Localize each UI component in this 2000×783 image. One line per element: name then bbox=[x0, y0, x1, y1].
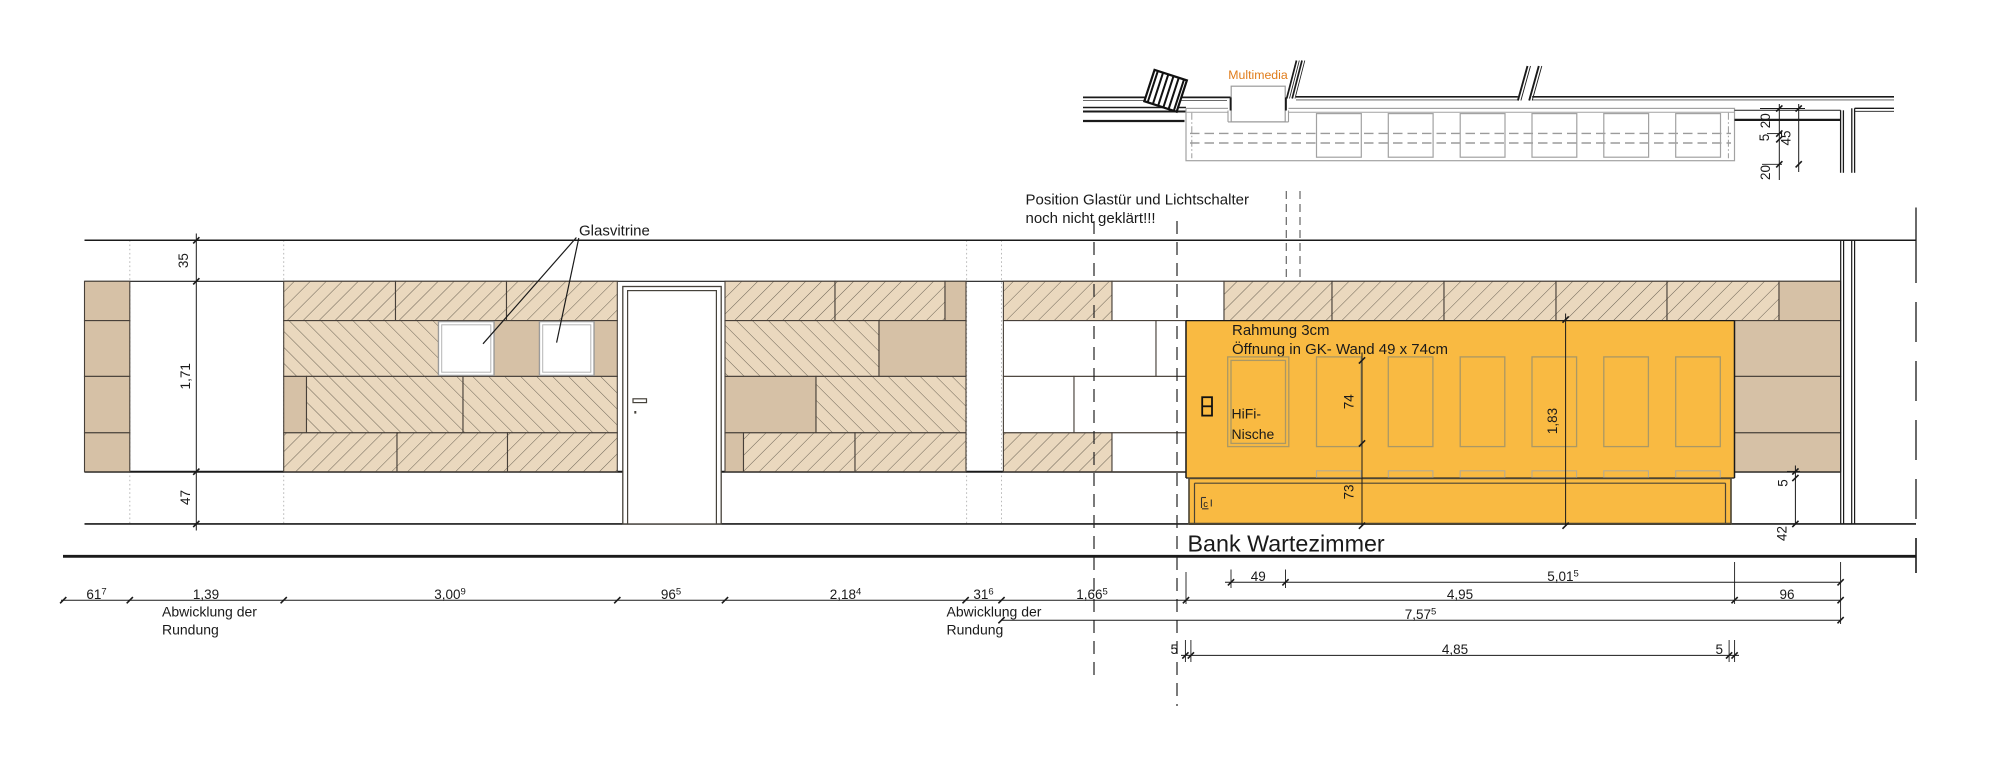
svg-text:Öffnung in GK- Wand 49 x 74cm: Öffnung in GK- Wand 49 x 74cm bbox=[1232, 340, 1448, 358]
svg-text:49: 49 bbox=[1251, 569, 1266, 584]
svg-text:HiFi-: HiFi- bbox=[1232, 406, 1262, 422]
svg-text:47: 47 bbox=[178, 490, 193, 505]
svg-text:35: 35 bbox=[176, 253, 191, 268]
svg-text:Abwicklung der: Abwicklung der bbox=[162, 604, 257, 620]
svg-text:42: 42 bbox=[1775, 526, 1790, 541]
svg-text:20: 20 bbox=[1758, 113, 1773, 128]
svg-text:Bank Wartezimmer: Bank Wartezimmer bbox=[1188, 531, 1385, 557]
svg-text:4,95: 4,95 bbox=[1447, 587, 1473, 602]
svg-text:5: 5 bbox=[1170, 642, 1178, 657]
svg-text:Nische: Nische bbox=[1232, 426, 1275, 442]
svg-text:45: 45 bbox=[1779, 130, 1794, 145]
svg-text:20: 20 bbox=[1758, 165, 1773, 180]
svg-text:1,71: 1,71 bbox=[178, 363, 193, 389]
svg-text:Rundung: Rundung bbox=[162, 622, 219, 638]
svg-text:1,83: 1,83 bbox=[1545, 408, 1560, 434]
svg-text:Rundung: Rundung bbox=[947, 622, 1004, 638]
svg-text:Glasvitrine: Glasvitrine bbox=[579, 223, 650, 240]
svg-text:96: 96 bbox=[1779, 587, 1794, 602]
svg-text:1,39: 1,39 bbox=[193, 587, 219, 602]
svg-text:74: 74 bbox=[1342, 394, 1357, 410]
svg-text:5: 5 bbox=[1715, 642, 1723, 657]
svg-text:73: 73 bbox=[1342, 484, 1357, 499]
svg-text:noch nicht geklärt!!!: noch nicht geklärt!!! bbox=[1026, 210, 1156, 227]
svg-text:Multimedia: Multimedia bbox=[1228, 68, 1288, 82]
svg-text:Abwicklung der: Abwicklung der bbox=[947, 604, 1042, 620]
svg-text:Rahmung 3cm: Rahmung 3cm bbox=[1232, 322, 1330, 339]
svg-text:5: 5 bbox=[1776, 479, 1791, 487]
svg-text:4,85: 4,85 bbox=[1442, 642, 1468, 657]
svg-text:Position Glastür und Lichtscha: Position Glastür und Lichtschalter bbox=[1026, 191, 1249, 208]
svg-text:5: 5 bbox=[1757, 134, 1772, 142]
